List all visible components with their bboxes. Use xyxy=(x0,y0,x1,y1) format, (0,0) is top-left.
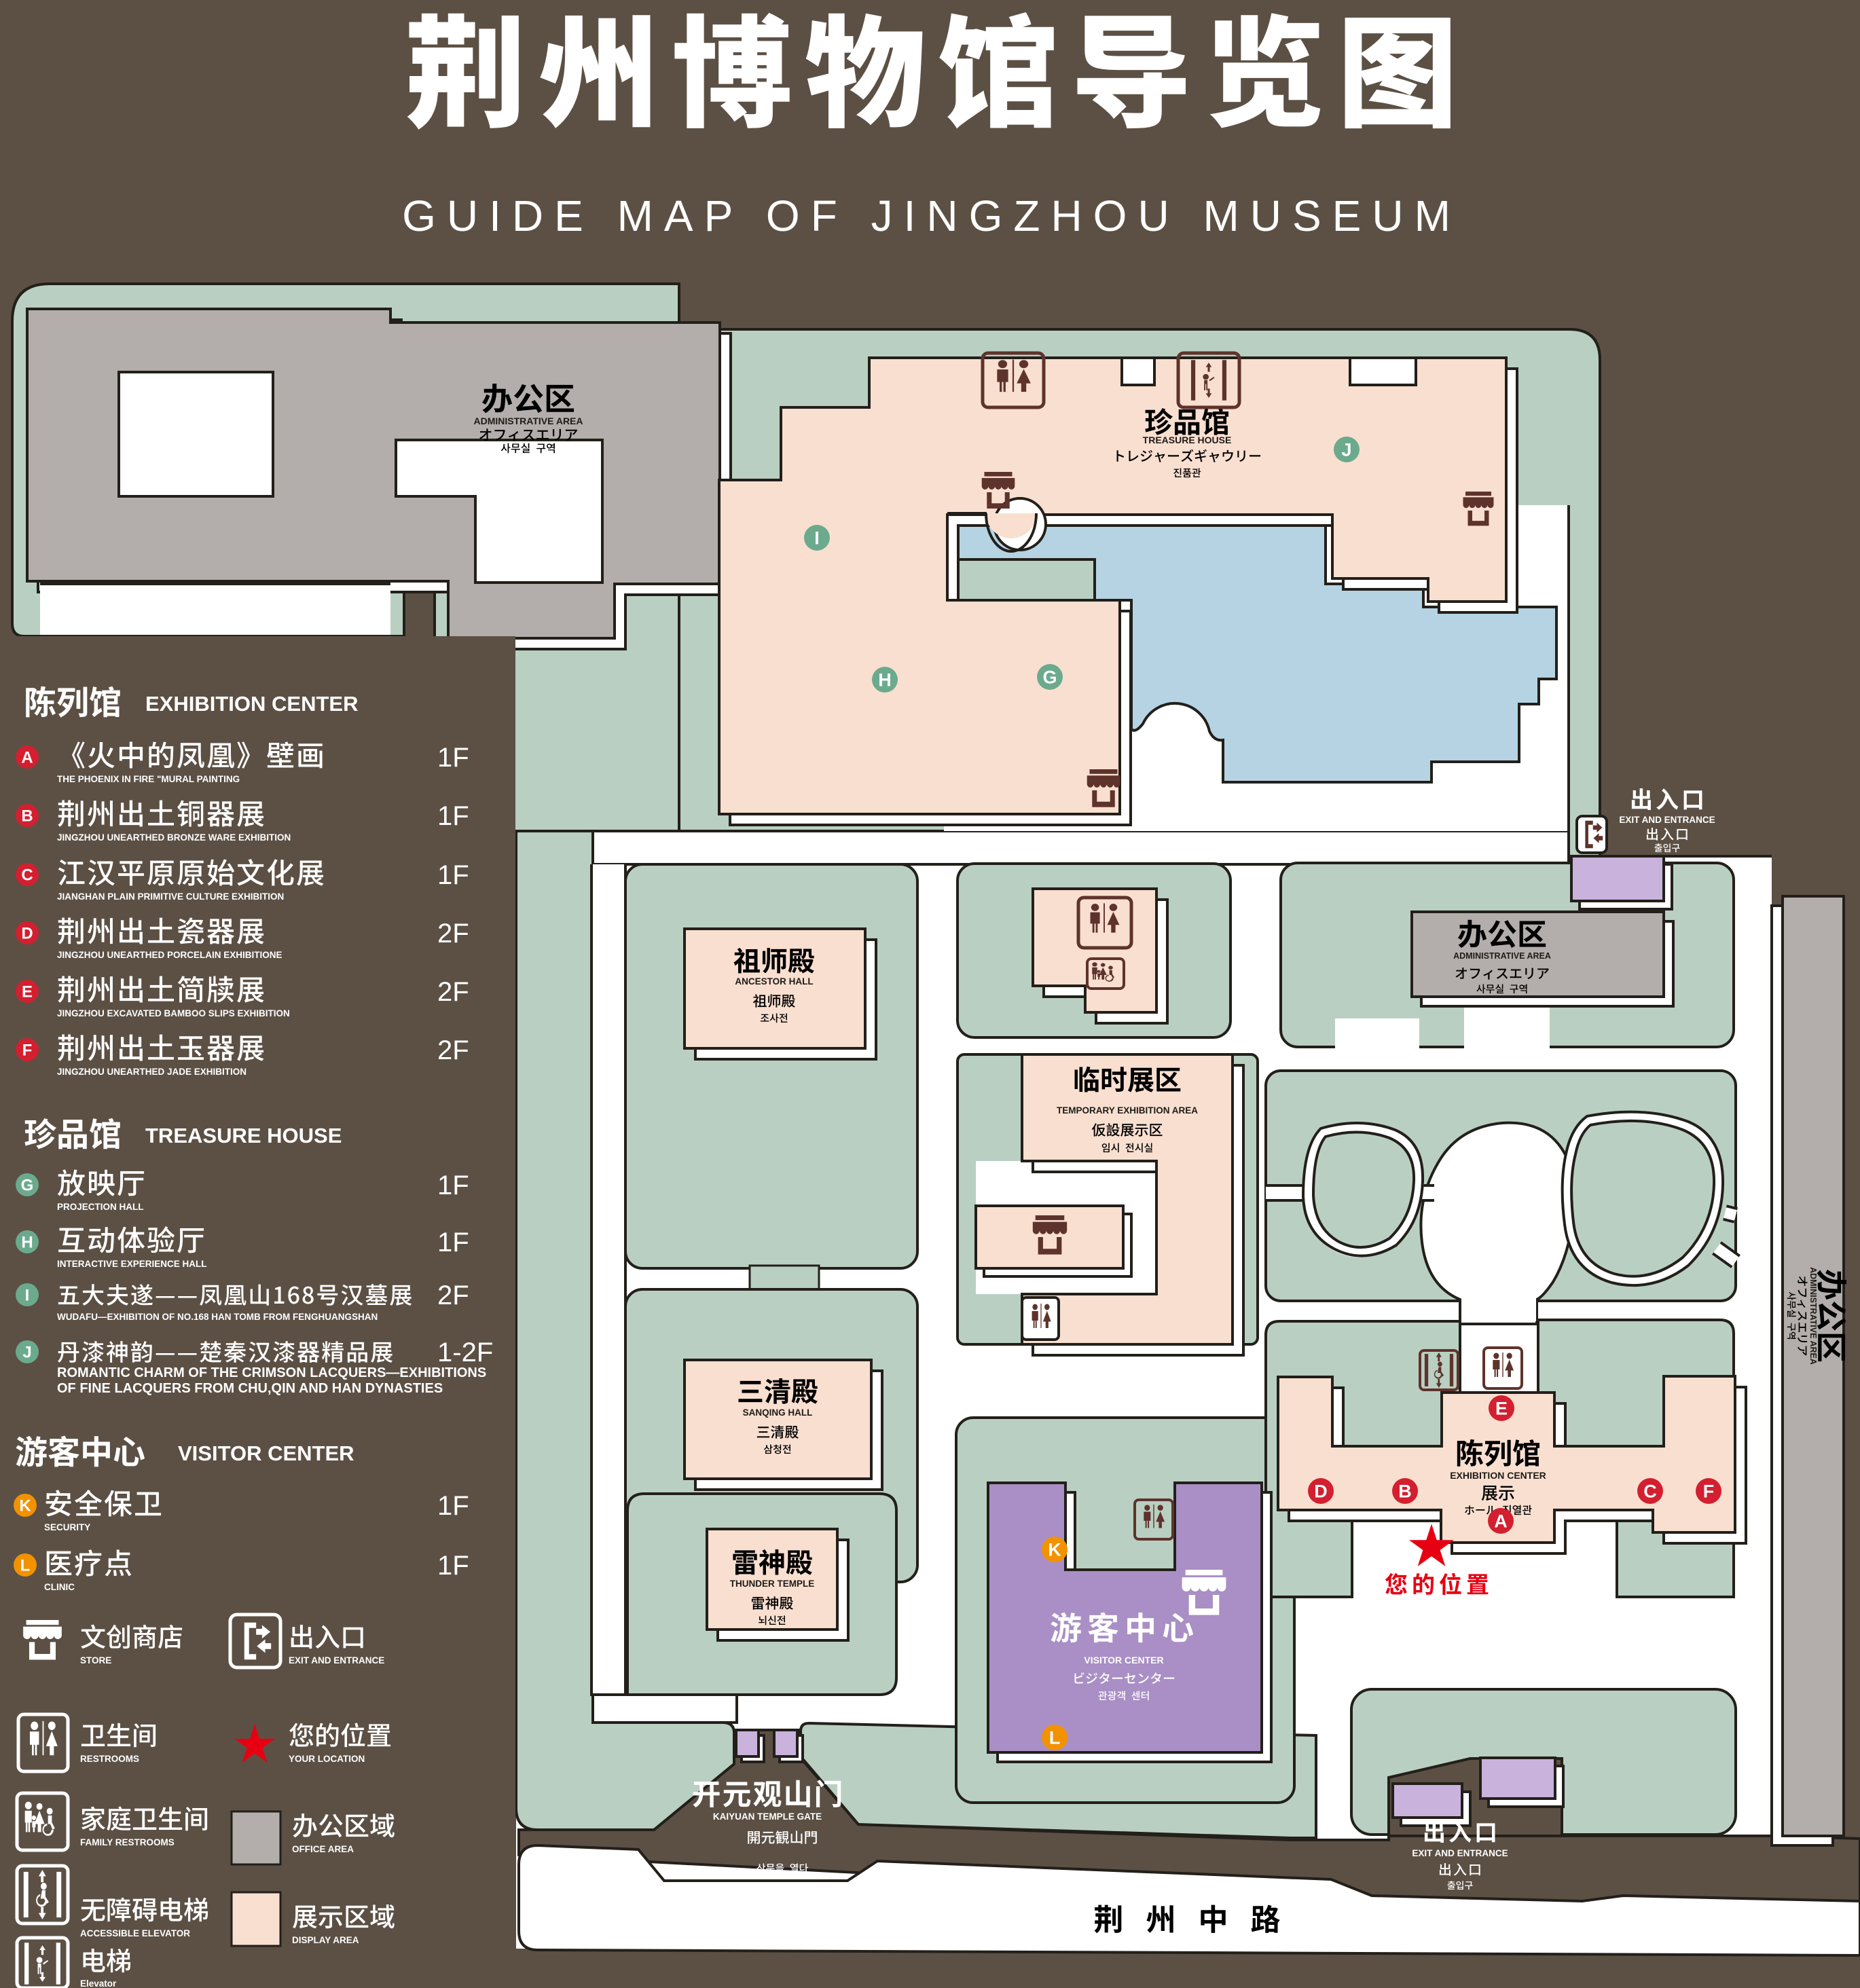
svg-text:CLINIC: CLINIC xyxy=(44,1582,75,1592)
svg-text:ADMINISTRATIVE AREA: ADMINISTRATIVE AREA xyxy=(474,416,583,426)
svg-text:KAIYUAN TEMPLE GATE: KAIYUAN TEMPLE GATE xyxy=(713,1811,822,1822)
svg-text:JINGZHOU EXCAVATED BAMBOO SLIP: JINGZHOU EXCAVATED BAMBOO SLIPS EXHIBITI… xyxy=(57,1008,290,1018)
svg-text:L: L xyxy=(20,1556,31,1575)
svg-text:EXIT AND ENTRANCE: EXIT AND ENTRANCE xyxy=(289,1655,384,1665)
svg-text:G: G xyxy=(21,1176,34,1194)
svg-text:EXHIBITION CENTER: EXHIBITION CENTER xyxy=(1450,1470,1546,1481)
svg-text:C: C xyxy=(1643,1481,1657,1501)
svg-text:SECURITY: SECURITY xyxy=(44,1522,90,1532)
svg-text:A: A xyxy=(21,748,33,767)
svg-text:ADMINISTRATIVE AREA: ADMINISTRATIVE AREA xyxy=(1808,1267,1818,1365)
svg-text:TREASURE HOUSE: TREASURE HOUSE xyxy=(1143,435,1232,445)
svg-text:I: I xyxy=(814,528,820,548)
svg-text:L: L xyxy=(1049,1727,1061,1748)
svg-text:Elevator: Elevator xyxy=(80,1978,117,1988)
svg-text:K: K xyxy=(1048,1539,1061,1560)
svg-text:J: J xyxy=(22,1343,31,1361)
svg-text:1F: 1F xyxy=(437,1171,469,1200)
svg-text:J: J xyxy=(1341,439,1351,460)
svg-text:K: K xyxy=(19,1496,31,1515)
svg-text:E: E xyxy=(1495,1398,1508,1418)
svg-text:1F: 1F xyxy=(437,860,469,890)
svg-text:C: C xyxy=(21,866,33,884)
svg-text:OFFICE AREA: OFFICE AREA xyxy=(292,1844,354,1854)
svg-text:RESTROOMS: RESTROOMS xyxy=(80,1754,139,1764)
svg-text:ACCESSIBLE ELEVATOR: ACCESSIBLE ELEVATOR xyxy=(80,1928,190,1938)
svg-text:JINGZHOU UNEARTHED BRONZE WARE: JINGZHOU UNEARTHED BRONZE WARE EXHIBITIO… xyxy=(57,832,291,843)
svg-text:G: G xyxy=(1042,667,1057,687)
svg-text:JIANGHAN PLAIN PRIMITIVE CULTU: JIANGHAN PLAIN PRIMITIVE CULTURE EXHIBIT… xyxy=(57,891,284,902)
svg-text:PROJECTION HALL: PROJECTION HALL xyxy=(57,1202,144,1212)
svg-text:THE PHOENIX IN FIRE "MURAL PAI: THE PHOENIX IN FIRE "MURAL PAINTING xyxy=(57,774,240,784)
svg-text:ANCESTOR HALL: ANCESTOR HALL xyxy=(735,976,813,987)
svg-text:TEMPORARY EXHIBITION AREA: TEMPORARY EXHIBITION AREA xyxy=(1057,1105,1198,1116)
svg-text:B: B xyxy=(1398,1481,1412,1501)
svg-text:FAMILY RESTROOMS: FAMILY RESTROOMS xyxy=(80,1837,175,1847)
svg-text:INTERACTIVE EXPERIENCE HALL: INTERACTIVE EXPERIENCE HALL xyxy=(57,1259,207,1269)
svg-text:OF FINE LACQUERS FROM CHU,QIN: OF FINE LACQUERS FROM CHU,QIN AND HAN DY… xyxy=(57,1381,443,1396)
svg-text:F: F xyxy=(1703,1481,1715,1501)
svg-text:DISPLAY AREA: DISPLAY AREA xyxy=(292,1935,359,1945)
svg-text:SANQING HALL: SANQING HALL xyxy=(743,1407,813,1418)
svg-text:1F: 1F xyxy=(437,801,469,831)
svg-text:ROMANTIC CHARM OF THE CRIMSON: ROMANTIC CHARM OF THE CRIMSON LACQUERS—E… xyxy=(57,1365,486,1380)
svg-text:EXIT AND ENTRANCE: EXIT AND ENTRANCE xyxy=(1619,815,1715,825)
svg-text:1F: 1F xyxy=(437,1491,469,1521)
svg-text:1F: 1F xyxy=(437,1551,469,1581)
svg-text:VISITOR CENTER: VISITOR CENTER xyxy=(1084,1655,1163,1665)
svg-text:STORE: STORE xyxy=(80,1655,111,1665)
svg-text:2F: 2F xyxy=(437,1281,469,1310)
svg-text:YOUR LOCATION: YOUR LOCATION xyxy=(289,1754,365,1764)
svg-text:1F: 1F xyxy=(437,743,469,773)
svg-text:ADMINISTRATIVE AREA: ADMINISTRATIVE AREA xyxy=(1453,951,1551,961)
svg-text:2F: 2F xyxy=(437,977,469,1007)
svg-text:2F: 2F xyxy=(437,919,469,949)
svg-text:H: H xyxy=(878,669,892,690)
svg-text:D: D xyxy=(1314,1481,1328,1501)
svg-text:1F: 1F xyxy=(437,1228,469,1257)
svg-text:JINGZHOU UNEARTHED PORCELAIN E: JINGZHOU UNEARTHED PORCELAIN EXHIBITIONE xyxy=(57,950,282,960)
svg-text:EXIT AND ENTRANCE: EXIT AND ENTRANCE xyxy=(1412,1848,1508,1858)
svg-text:I: I xyxy=(25,1286,30,1304)
svg-text:TREASURE HOUSE: TREASURE HOUSE xyxy=(145,1124,342,1147)
svg-text:E: E xyxy=(22,982,33,1001)
svg-text:THUNDER TEMPLE: THUNDER TEMPLE xyxy=(730,1579,815,1589)
svg-text:F: F xyxy=(22,1041,33,1059)
svg-text:1-2F: 1-2F xyxy=(437,1338,493,1367)
svg-text:A: A xyxy=(1494,1511,1508,1531)
svg-text:EXHIBITION CENTER: EXHIBITION CENTER xyxy=(145,692,358,716)
svg-text:H: H xyxy=(21,1233,33,1251)
svg-text:WUDAFU—EXHIBITION OF NO.168 HA: WUDAFU—EXHIBITION OF NO.168 HAN TOMB FRO… xyxy=(57,1312,378,1322)
svg-text:2F: 2F xyxy=(437,1035,469,1065)
svg-text:VISITOR CENTER: VISITOR CENTER xyxy=(178,1441,354,1465)
svg-text:D: D xyxy=(21,924,33,942)
svg-text:JINGZHOU UNEARTHED JADE EXHIBI: JINGZHOU UNEARTHED JADE EXHIBITION xyxy=(57,1067,247,1077)
svg-text:GUIDE MAP OF JINGZHOU MUSEUM: GUIDE MAP OF JINGZHOU MUSEUM xyxy=(402,191,1461,240)
svg-text:B: B xyxy=(21,807,33,825)
